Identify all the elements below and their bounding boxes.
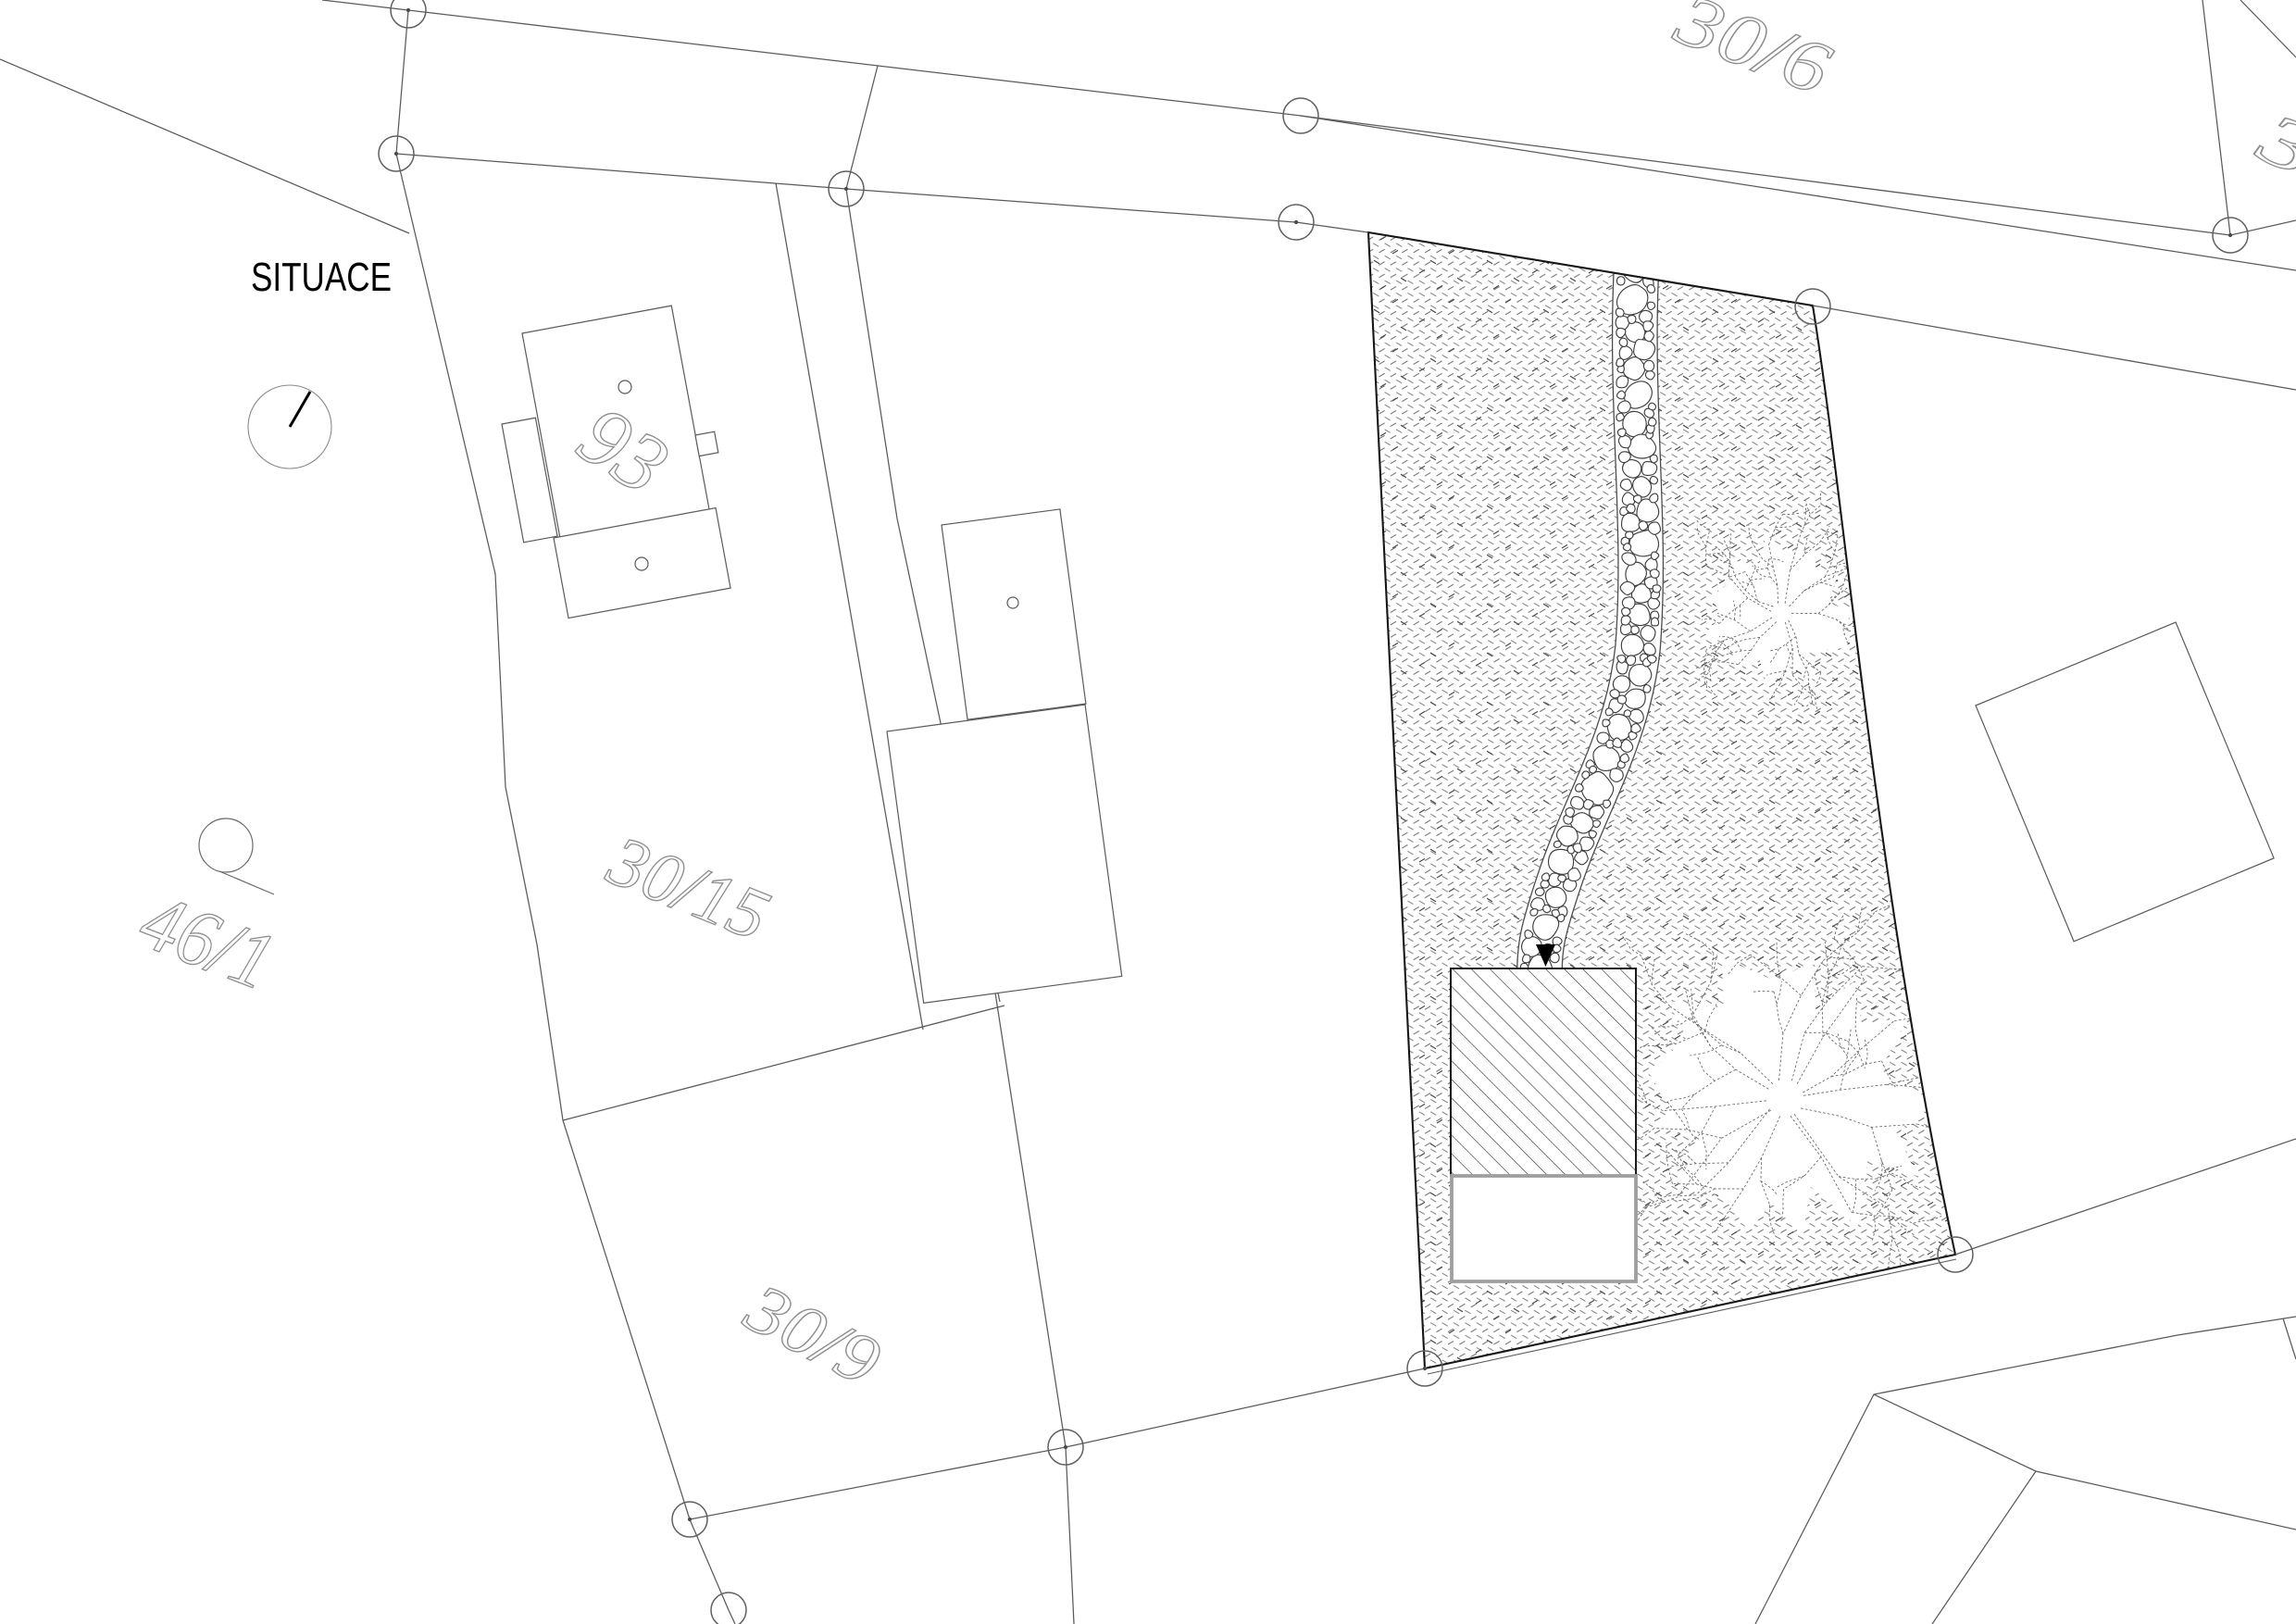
svg-text:SITUACE: SITUACE	[251, 255, 392, 300]
